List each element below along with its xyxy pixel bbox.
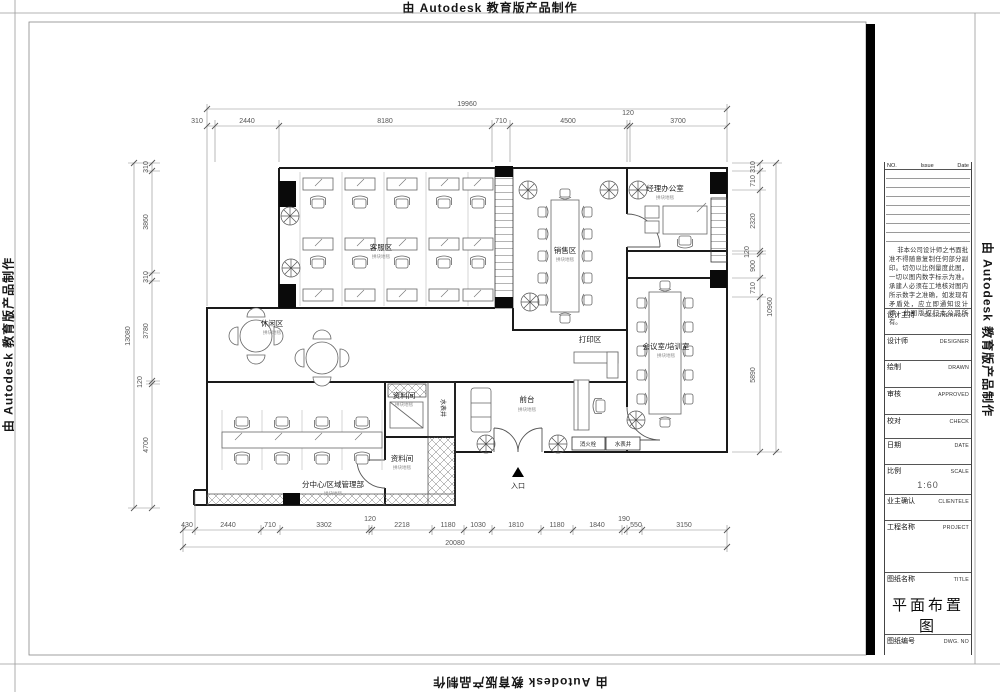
revision-table-header: NO. Issue Date <box>885 162 971 170</box>
field-dwg-no: 图纸编号DWG. NO <box>885 634 971 661</box>
room-label-print: 打印区 <box>579 334 602 344</box>
svg-text:2218: 2218 <box>394 522 410 529</box>
field-en: SCALE <box>951 469 969 475</box>
field-client-confirm: 业主确认CLIENTELE <box>885 494 971 520</box>
svg-text:拼块地毯: 拼块地毯 <box>395 401 413 408</box>
svg-text:2320: 2320 <box>750 213 757 229</box>
field-designer: 设计师DESIGNER <box>885 334 971 360</box>
customer-service-furniture <box>300 172 493 306</box>
field-label: 日期 <box>887 440 901 450</box>
svg-text:710: 710 <box>750 282 757 294</box>
field-check: 校对CHECK <box>885 414 971 438</box>
room-label-manager: 经理办公室 <box>646 183 684 193</box>
svg-text:1180: 1180 <box>440 522 455 529</box>
field-label: 图纸编号 <box>887 636 915 646</box>
svg-text:8180: 8180 <box>377 118 393 125</box>
branch-furniture <box>222 410 382 470</box>
field-label: 设计师 <box>887 336 908 346</box>
room-label-customer-service: 客服区 <box>370 242 393 252</box>
sheet-frame <box>0 0 1000 692</box>
leisure-furniture <box>229 308 349 386</box>
field-scale: 比例SCALE 1:60 <box>885 464 971 494</box>
room-label-sales: 销售区 <box>554 245 577 255</box>
svg-text:3150: 3150 <box>676 522 692 529</box>
svg-text:4700: 4700 <box>143 437 150 453</box>
manager-cabinet <box>711 198 727 262</box>
svg-text:120: 120 <box>137 376 144 388</box>
svg-text:3700: 3700 <box>670 118 686 125</box>
revision-date-header: Date <box>957 163 969 169</box>
room-label-archive-1: 资料间 <box>393 390 416 400</box>
entrance-arrow-icon <box>512 467 524 477</box>
svg-text:310: 310 <box>191 118 203 125</box>
dim-top-total: 19960 <box>457 101 477 108</box>
field-en: TITLE <box>954 577 969 583</box>
sales-furniture <box>538 189 592 323</box>
dim-right-total: 10960 <box>767 297 774 317</box>
floor-plan-canvas: 19960 310 2440 8180 710 4500 120 3700 20… <box>0 0 1000 692</box>
svg-text:710: 710 <box>750 175 757 187</box>
revision-table-lines <box>885 170 971 242</box>
room-label-reception: 前台 <box>520 394 535 404</box>
plants <box>281 181 647 453</box>
svg-text:拼块地毯: 拼块地毯 <box>657 352 675 359</box>
glazed-partition <box>495 168 513 308</box>
field-en: DATE <box>954 443 969 449</box>
field-sheet-title: 图纸名称TITLE 平面布置图 <box>885 572 971 634</box>
svg-text:190: 190 <box>618 516 630 523</box>
room-label-meeting: 会议室/培训室 <box>642 341 690 351</box>
svg-text:710: 710 <box>264 522 276 529</box>
field-en: DESIGNERHOST <box>924 313 969 319</box>
field-drawn: 绘制DRAWN <box>885 360 971 387</box>
svg-text:拼块地毯: 拼块地毯 <box>518 406 536 413</box>
svg-text:拼块地毯: 拼块地毯 <box>372 253 390 260</box>
field-approved: 审核APPROVED <box>885 387 971 414</box>
manager-furniture <box>645 203 707 248</box>
svg-text:3860: 3860 <box>143 214 150 230</box>
scale-value: 1:60 <box>887 480 969 490</box>
frame-heavy-bar <box>866 24 875 655</box>
svg-text:120: 120 <box>622 110 634 117</box>
svg-text:120: 120 <box>744 246 751 258</box>
field-en: CLIENTELE <box>938 499 969 505</box>
field-en: APPROVED <box>938 392 969 398</box>
svg-text:1840: 1840 <box>589 522 605 529</box>
hydrant-box-label: 消火栓 <box>580 440 597 448</box>
svg-text:拼块地毯: 拼块地毯 <box>556 256 574 263</box>
field-en: PROJECT <box>943 525 969 531</box>
drawing-sheet: 由 Autodesk 教育版产品制作 由 Autodesk 教育版产品制作 由 … <box>0 0 1000 692</box>
room-label-archive-2: 资料间 <box>391 453 414 463</box>
svg-text:3302: 3302 <box>316 522 332 529</box>
svg-text:4500: 4500 <box>560 118 576 125</box>
misc-furniture <box>390 352 640 450</box>
field-en: DRAWN <box>948 365 969 371</box>
svg-text:拼块地毯: 拼块地毯 <box>263 329 281 336</box>
svg-text:430: 430 <box>181 522 193 529</box>
svg-text:2440: 2440 <box>220 522 236 529</box>
svg-text:310: 310 <box>750 161 757 173</box>
svg-text:310: 310 <box>143 271 150 283</box>
field-label: 设计主持 <box>887 310 915 320</box>
field-label: 绘制 <box>887 362 901 372</box>
dim-bottom-total: 20080 <box>445 540 465 547</box>
room-label-branch: 分中心/区域管理部 <box>302 479 365 489</box>
field-label: 校对 <box>887 416 901 426</box>
svg-text:2440: 2440 <box>239 118 255 125</box>
entrance-label: 入口 <box>511 482 525 490</box>
field-label: 工程名称 <box>887 522 915 532</box>
svg-text:拼块地毯: 拼块地毯 <box>393 464 411 471</box>
revision-no-header: NO. <box>887 163 897 169</box>
svg-text:5890: 5890 <box>750 367 757 383</box>
field-label: 审核 <box>887 389 901 399</box>
svg-text:710: 710 <box>495 118 507 125</box>
field-project: 工程名称PROJECT <box>885 520 971 572</box>
field-date: 日期DATE <box>885 438 971 464</box>
dim-left-total: 13080 <box>125 326 132 346</box>
room-label-leisure: 休闲区 <box>261 318 284 328</box>
svg-text:120: 120 <box>364 516 376 523</box>
svg-text:1810: 1810 <box>508 522 524 529</box>
svg-text:550: 550 <box>630 522 642 529</box>
revision-issue-header: Issue <box>921 163 934 169</box>
svg-text:拼块地毯: 拼块地毯 <box>324 490 342 497</box>
svg-text:3780: 3780 <box>143 323 150 339</box>
meter-box-label: 水表井 <box>615 440 632 448</box>
svg-text:310: 310 <box>143 161 150 173</box>
copyright-note: 非本公司设计师之书面批准不得随意复制任何部分副印。切勿以比例量度此图，一切以图内… <box>885 242 971 308</box>
svg-text:900: 900 <box>750 260 757 272</box>
water-shaft-label: 水表井 <box>439 399 447 417</box>
title-block: NO. Issue Date 非本公司设计师之书面批准不得随意复制任何部分副印。… <box>884 162 972 655</box>
field-en: CHECK <box>949 419 969 425</box>
field-label: 比例 <box>887 466 901 476</box>
svg-text:拼块地毯: 拼块地毯 <box>656 194 674 201</box>
field-en: DESIGNER <box>940 339 969 345</box>
field-en: DWG. NO <box>944 639 969 645</box>
svg-text:1180: 1180 <box>549 522 564 529</box>
svg-text:1030: 1030 <box>470 522 486 529</box>
sheet-title-value: 平面布置图 <box>887 594 969 636</box>
field-label: 业主确认 <box>887 496 915 506</box>
field-label: 图纸名称 <box>887 574 915 584</box>
